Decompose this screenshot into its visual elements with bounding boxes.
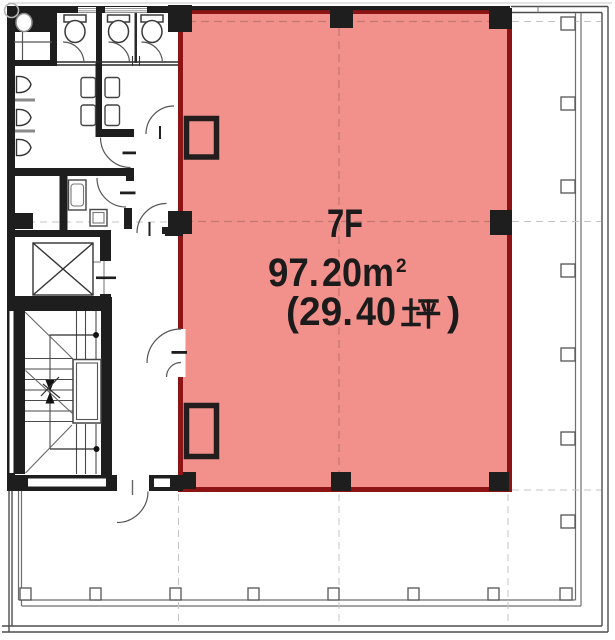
svg-text:7F: 7F <box>327 202 363 246</box>
svg-text:2: 2 <box>396 256 407 277</box>
svg-text:97.: 97. <box>268 251 319 295</box>
svg-text:(29.: (29. <box>286 290 353 334</box>
svg-text:20m: 20m <box>322 251 394 295</box>
svg-text:): ) <box>447 290 460 334</box>
svg-text:40: 40 <box>356 290 396 334</box>
